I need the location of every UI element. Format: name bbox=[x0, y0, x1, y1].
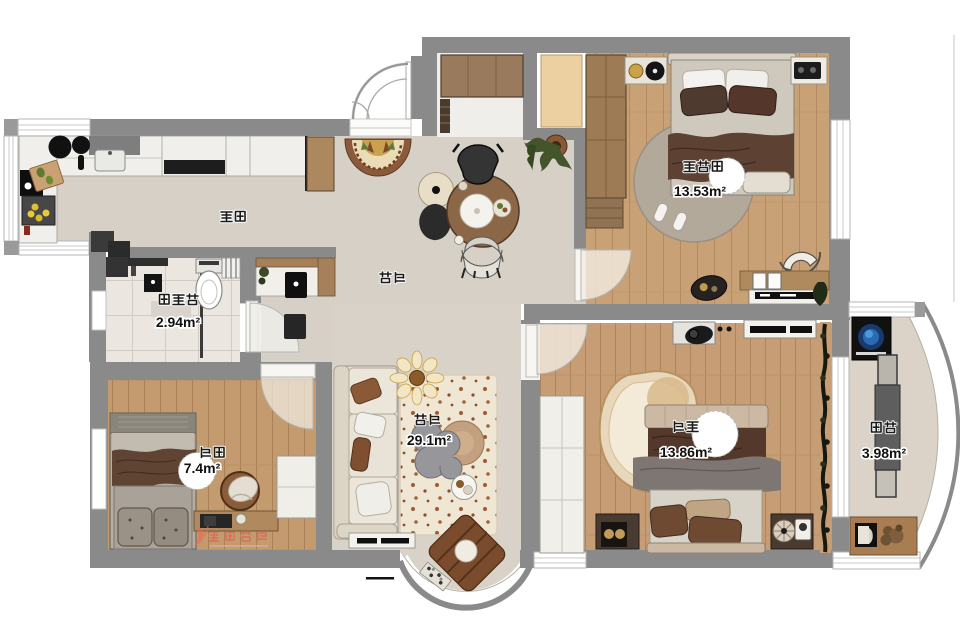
svg-text:3.98m²: 3.98m² bbox=[862, 445, 907, 461]
svg-text:7.4m²: 7.4m² bbox=[184, 460, 221, 476]
svg-text:2.94m²: 2.94m² bbox=[156, 314, 201, 330]
svg-text:13.53m²: 13.53m² bbox=[674, 183, 726, 199]
svg-text:29.1m²: 29.1m² bbox=[407, 432, 452, 448]
svg-text:13.86m²: 13.86m² bbox=[660, 444, 712, 460]
